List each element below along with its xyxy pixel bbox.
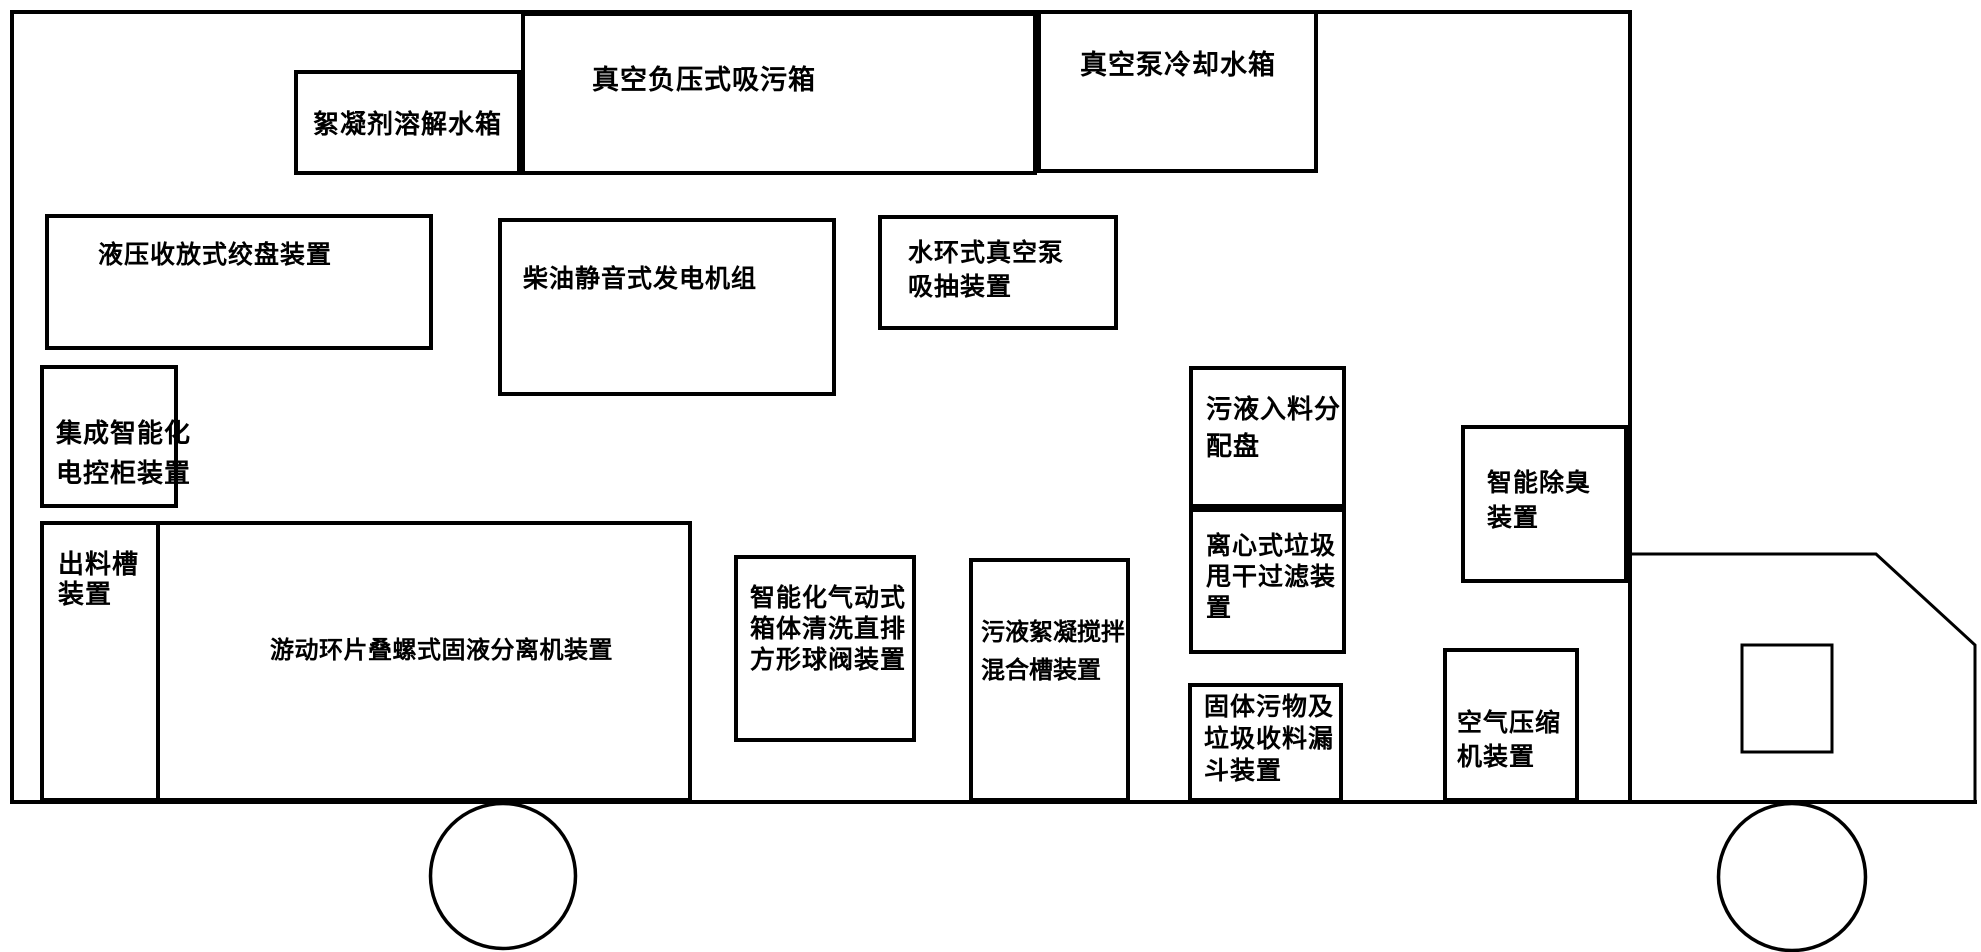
separator-label: 游动环片叠螺式固液分离机装置 — [270, 630, 613, 665]
component-label: 混合槽装置 — [981, 652, 1126, 690]
box-flocculant-dissolving-tank: 絮凝剂溶解水箱 — [294, 70, 521, 175]
component-label: 柴油静音式发电机组 — [523, 259, 832, 295]
component-label: 智能除臭 — [1487, 466, 1624, 501]
component-label: 集成智能化 — [56, 413, 174, 453]
rear-wheel — [431, 804, 576, 949]
component-label: 真空泵冷却水箱 — [1080, 43, 1314, 82]
box-hydraulic-winch: 液压收放式绞盘装置 — [45, 214, 433, 350]
component-label: 配盘 — [1206, 428, 1342, 465]
component-label: 甩干过滤装 — [1206, 562, 1342, 593]
sanitation-truck-diagram: 絮凝剂溶解水箱 真空负压式吸污箱 真空泵冷却水箱 液压收放式绞盘装置 柴油静音式… — [0, 0, 1981, 952]
component-label: 固体污物及 — [1204, 691, 1339, 723]
component-label: 吸抽装置 — [908, 270, 1114, 304]
box-air-compressor: 空气压缩 机装置 — [1443, 648, 1579, 802]
component-label: 装置 — [58, 579, 156, 609]
component-label: 空气压缩 — [1457, 706, 1575, 740]
component-label: 液压收放式绞盘装置 — [98, 235, 429, 271]
component-label: 出料槽 — [58, 549, 156, 579]
cab-window — [1742, 645, 1832, 752]
box-centrifugal-filter: 离心式垃圾 甩干过滤装 置 — [1189, 508, 1346, 654]
component-label: 箱体清洗直排 — [750, 614, 912, 645]
box-solids-hopper: 固体污物及 垃圾收料漏 斗装置 — [1188, 683, 1343, 802]
component-label: 智能化气动式 — [750, 583, 912, 614]
box-pneumatic-ball-valve: 智能化气动式 箱体清洗直排 方形球阀装置 — [734, 555, 916, 742]
component-label: 污液入料分 — [1206, 391, 1342, 428]
front-wheel — [1719, 804, 1866, 951]
component-label: 真空负压式吸污箱 — [592, 58, 1033, 97]
component-label: 垃圾收料漏 — [1204, 723, 1339, 755]
component-label: 污液絮凝搅拌 — [981, 614, 1126, 652]
box-vacuum-pump-cooling-tank: 真空泵冷却水箱 — [1037, 10, 1318, 173]
component-label: 置 — [1206, 593, 1342, 624]
box-discharge-separator-unit: 出料槽 装置 游动环片叠螺式固液分离机装置 — [40, 521, 692, 802]
box-control-cabinet: 集成智能化 电控柜装置 — [40, 365, 178, 508]
component-label: 电控柜装置 — [56, 453, 174, 493]
component-label: 水环式真空泵 — [908, 236, 1114, 270]
component-label: 装置 — [1487, 501, 1624, 536]
box-deodorizer: 智能除臭 装置 — [1461, 425, 1628, 583]
box-diesel-generator: 柴油静音式发电机组 — [498, 218, 836, 396]
component-label: 离心式垃圾 — [1206, 531, 1342, 562]
component-label: 机装置 — [1457, 740, 1575, 774]
discharge-chute-cell: 出料槽 装置 — [44, 525, 160, 798]
component-label: 絮凝剂溶解水箱 — [298, 74, 517, 171]
box-water-ring-vacuum-pump: 水环式真空泵 吸抽装置 — [878, 215, 1118, 330]
component-label: 方形球阀装置 — [750, 645, 912, 676]
box-flocculation-mixing-tank: 污液絮凝搅拌 混合槽装置 — [969, 558, 1130, 802]
box-vacuum-suction-tank: 真空负压式吸污箱 — [521, 12, 1037, 175]
box-inlet-distributor: 污液入料分 配盘 — [1189, 366, 1346, 508]
component-label: 斗装置 — [1204, 755, 1339, 787]
